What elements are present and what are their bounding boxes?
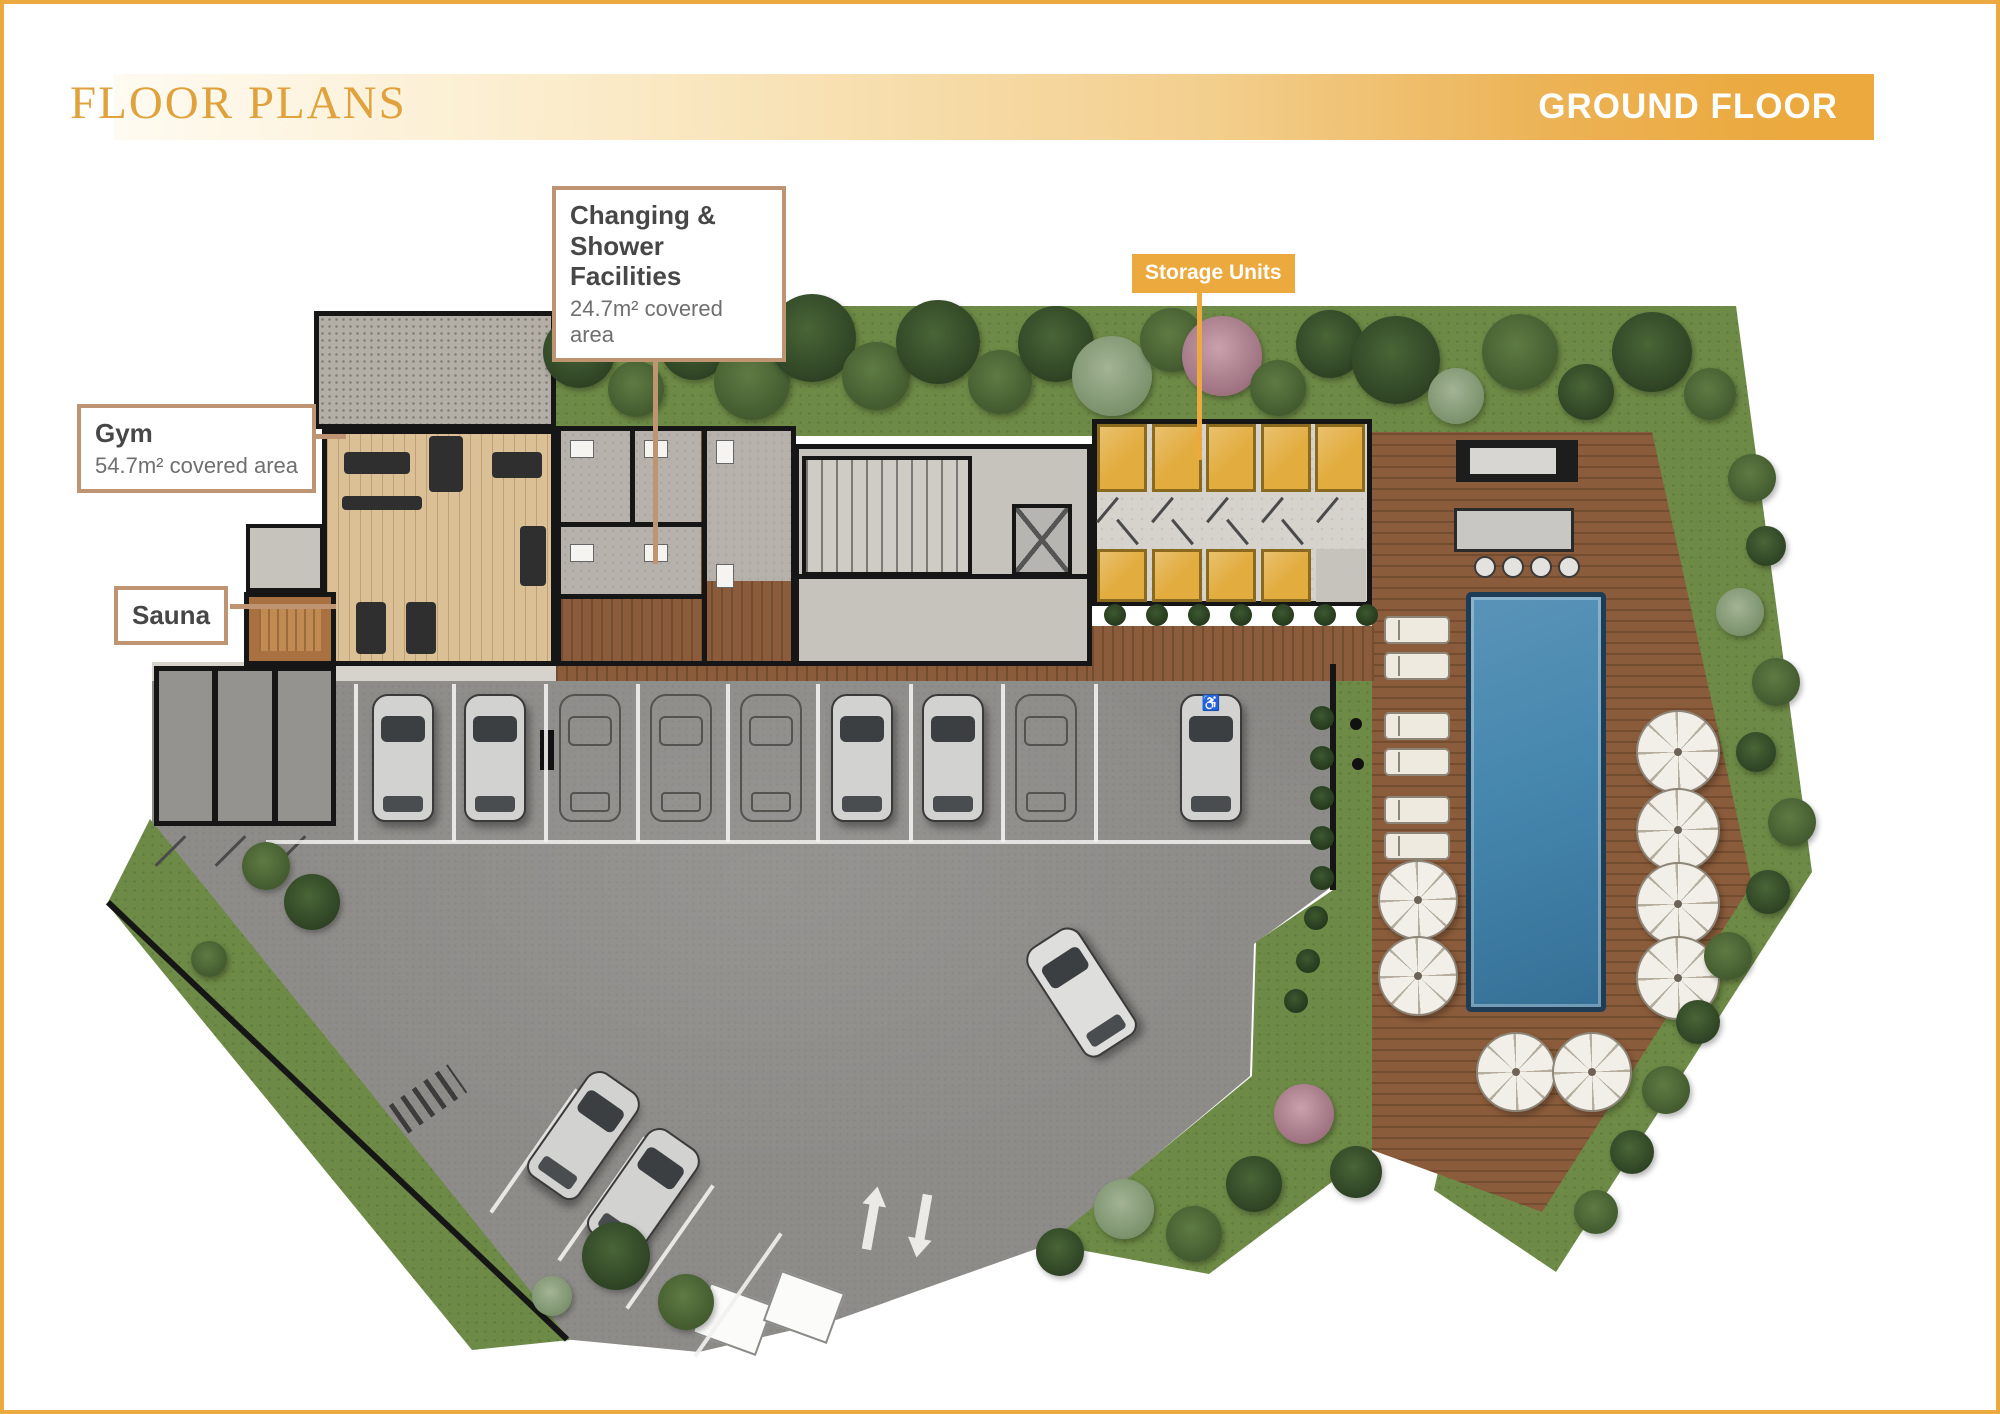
gym-equipment <box>356 602 386 654</box>
parking-stall-line <box>909 684 913 842</box>
callout-storage-units: Storage Units <box>1132 254 1295 293</box>
parked-car <box>831 694 893 822</box>
wood-walkway <box>556 664 1092 681</box>
bin-wall <box>272 668 278 824</box>
interior-wall <box>702 426 707 666</box>
hedge <box>1310 866 1334 890</box>
parking-stall-line <box>816 684 820 842</box>
storage-unit-cell <box>1261 424 1311 492</box>
parasol-umbrella <box>1476 1032 1556 1112</box>
wc-fixture <box>570 544 594 562</box>
palm-tree <box>1752 658 1800 706</box>
parasol-umbrella <box>1636 788 1720 872</box>
callout-changing-area: 24.7m² covered area <box>570 296 768 348</box>
kitchen-counter-top <box>1470 448 1556 474</box>
parasol-umbrella <box>1636 710 1720 794</box>
accessible-icon: ♿ <box>1202 694 1221 712</box>
gym-equipment <box>520 526 546 586</box>
accessible-parking-car: ♿ <box>1180 694 1242 822</box>
parking-stall-line <box>544 684 548 842</box>
page: FLOOR PLANS GROUND FLOOR <box>0 0 2000 1414</box>
hedge <box>1310 706 1334 730</box>
palm-tree <box>1250 360 1306 416</box>
parasol-umbrella <box>1552 1032 1632 1112</box>
palm-tree <box>658 1274 714 1330</box>
parked-car <box>464 694 526 822</box>
storage-unit-cell <box>1097 549 1147 602</box>
palm-tree <box>1558 364 1614 420</box>
parasol-umbrella <box>1378 936 1458 1016</box>
palm-tree <box>1746 526 1786 566</box>
palm-tree <box>1684 368 1736 420</box>
storage-unit-cell <box>1315 424 1365 492</box>
callout-changing-title: Changing & Shower Facilities <box>570 200 768 292</box>
storage-unit-cell <box>1097 424 1147 492</box>
agave-plant <box>1428 368 1484 424</box>
pool <box>1466 592 1606 1012</box>
palm-tree <box>1728 454 1776 502</box>
parking-stall-line <box>1001 684 1005 842</box>
wc-fixture <box>570 440 594 458</box>
storage-leader-line <box>1197 290 1202 460</box>
hedge <box>1296 949 1320 973</box>
palm-tree <box>242 842 290 890</box>
agave-plant <box>1094 1179 1154 1239</box>
kitchen-island <box>1454 508 1574 552</box>
parasol-umbrella <box>1378 860 1458 940</box>
stairwell <box>802 456 972 576</box>
palm-tree <box>1036 1228 1084 1276</box>
interior-wall <box>630 426 635 526</box>
storage-open-bay <box>1316 549 1366 602</box>
sun-lounger <box>1384 748 1450 776</box>
bollard <box>1350 718 1362 730</box>
parking-stall-line <box>636 684 640 842</box>
flowering-palm-tree <box>1274 1084 1334 1144</box>
storage-unit-cell <box>1206 424 1256 492</box>
hedge <box>1304 906 1328 930</box>
hedge <box>1146 604 1168 626</box>
sauna-leader-line <box>230 604 336 609</box>
palm-tree <box>1704 932 1752 980</box>
hedge <box>1230 604 1252 626</box>
sun-lounger <box>1384 796 1450 824</box>
sun-lounger <box>1384 616 1450 644</box>
callout-gym: Gym 54.7m² covered area <box>77 404 316 493</box>
callout-storage-title: Storage Units <box>1145 261 1282 286</box>
bar-stool <box>1502 556 1524 578</box>
wc-fixture <box>716 564 734 588</box>
bin-wall <box>212 668 218 824</box>
interior-wall <box>556 522 706 527</box>
sun-lounger <box>1384 652 1450 680</box>
storage-unit-cell <box>1152 424 1202 492</box>
storage-unit-cell <box>1261 549 1311 602</box>
parking-stall-line <box>1094 684 1098 842</box>
palm-tree <box>1482 314 1558 390</box>
parking-car-outline <box>1015 694 1077 822</box>
palm-tree <box>284 874 340 930</box>
parking-car-outline <box>650 694 712 822</box>
interior-wall <box>556 594 706 599</box>
bar-stool <box>1474 556 1496 578</box>
callout-sauna-title: Sauna <box>132 600 210 631</box>
hedge <box>1188 604 1210 626</box>
parking-stall-line <box>452 684 456 842</box>
agave-plant <box>532 1276 572 1316</box>
palm-tree <box>896 300 980 384</box>
bar-stool <box>1530 556 1552 578</box>
palm-tree <box>1330 1146 1382 1198</box>
page-title: FLOOR PLANS <box>70 76 407 130</box>
palm-tree <box>1610 1130 1654 1174</box>
parasol-umbrella <box>1636 862 1720 946</box>
agave-plant <box>1716 588 1764 636</box>
interior-wall <box>792 574 1092 579</box>
storage-unit-cell <box>1206 549 1256 602</box>
hedge <box>1310 786 1334 810</box>
hedge <box>1310 826 1334 850</box>
storage-unit-cell <box>1152 549 1202 602</box>
palm-tree <box>1736 732 1776 772</box>
hedge <box>1272 604 1294 626</box>
callout-gym-area: 54.7m² covered area <box>95 453 298 479</box>
gym-equipment <box>344 452 410 474</box>
palm-tree <box>1746 870 1790 914</box>
bin-store <box>154 666 336 826</box>
elevator <box>1012 504 1072 576</box>
parked-car <box>372 694 434 822</box>
parking-car-outline <box>559 694 621 822</box>
callout-changing: Changing & Shower Facilities 24.7m² cove… <box>552 186 786 362</box>
parking-stall-line <box>726 684 730 842</box>
sun-lounger <box>1384 712 1450 740</box>
gravel-roof <box>314 311 556 429</box>
floor-badge: GROUND FLOOR <box>1538 74 1838 140</box>
palm-tree <box>1676 1000 1720 1044</box>
palm-tree <box>1642 1066 1690 1114</box>
palm-tree <box>1612 312 1692 392</box>
gym-equipment <box>406 602 436 654</box>
bar-stool <box>1558 556 1580 578</box>
sun-lounger <box>1384 832 1450 860</box>
palm-tree <box>1574 1190 1618 1234</box>
callout-gym-title: Gym <box>95 418 298 449</box>
parking-aisle-line <box>266 840 1330 844</box>
parking-stall-line <box>354 684 358 842</box>
hedge <box>1104 604 1126 626</box>
sauna-benches <box>259 607 321 651</box>
hedge <box>1310 746 1334 770</box>
callout-sauna: Sauna <box>114 586 228 645</box>
hedge <box>1356 604 1378 626</box>
hedge <box>1314 604 1336 626</box>
palm-tree <box>582 1222 650 1290</box>
hedge <box>1284 989 1308 1013</box>
parking-car-outline <box>740 694 802 822</box>
site-plan: ♿ <box>4 4 1996 1410</box>
boundary-wall-parking-east <box>1330 664 1336 890</box>
palm-tree <box>191 941 227 977</box>
palm-tree <box>1352 316 1440 404</box>
gym-equipment <box>429 436 463 492</box>
palm-tree <box>1226 1156 1282 1212</box>
palm-tree <box>1768 798 1816 846</box>
bollard <box>1352 758 1364 770</box>
entry-vestibule <box>246 524 324 592</box>
wc-fixture <box>716 440 734 464</box>
gym-equipment <box>492 452 542 478</box>
gym-equipment <box>342 496 422 510</box>
agave-plant <box>1072 336 1152 416</box>
parked-car <box>922 694 984 822</box>
palm-tree <box>1166 1206 1222 1262</box>
